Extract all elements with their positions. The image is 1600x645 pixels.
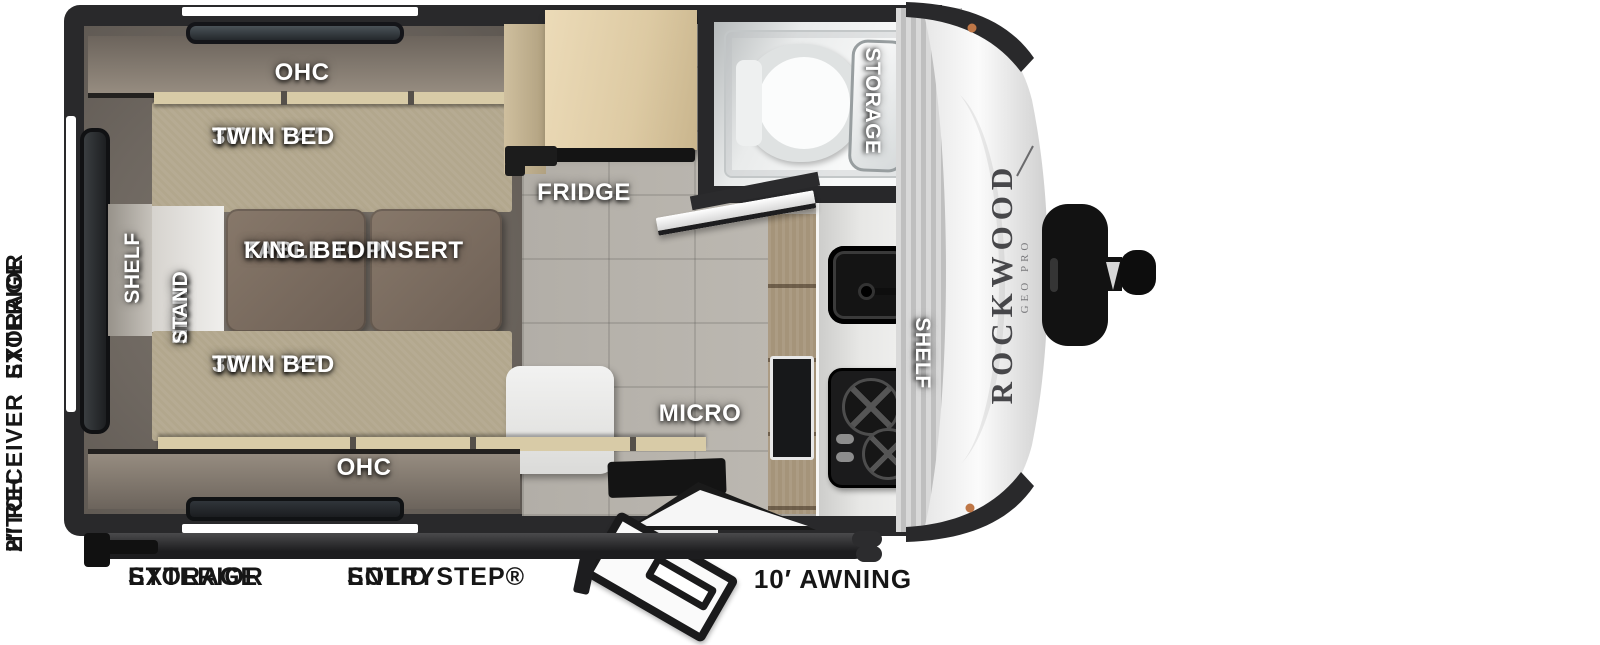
twin-bed-top-name: TWIN BED (212, 122, 335, 151)
micro-label: MICRO (630, 399, 770, 428)
roof-vent-top (186, 22, 404, 44)
toilet-tank (736, 60, 762, 146)
jack-knob (1120, 250, 1156, 295)
roof-vent-bottom (186, 497, 404, 521)
twin-bed-bottom-name: TWIN BED (212, 350, 335, 379)
strip-notch (281, 91, 287, 105)
ohc-label-bottom: OHC (304, 453, 424, 482)
side-table (506, 366, 614, 474)
rear-window-glass (80, 128, 110, 434)
awning-end-cap (852, 531, 882, 547)
rear-exterior-storage-label: EXTERIOR STORAGE (1, 149, 53, 379)
shelf-label-kitchen: SHELF (911, 288, 935, 418)
night-stand-line2: STAND (168, 271, 194, 344)
strip-notch (630, 437, 636, 451)
table-top-line2: KING BED INSERT (244, 236, 464, 265)
toilet-seat (758, 57, 850, 149)
propane-cover-seam (1050, 258, 1058, 292)
strip-notch (408, 91, 414, 105)
marker-light (966, 504, 975, 513)
front-cap (900, 0, 1170, 545)
fridge-handle (505, 162, 525, 176)
stove-knob (836, 434, 854, 444)
bathroom-storage-label: STORAGE (861, 26, 885, 176)
awning-roll (96, 533, 868, 559)
night-stand-label: NIGHT STAND (168, 194, 220, 344)
stabilizer-jack-arm (84, 540, 158, 554)
rv-floorplan: ROCKWOOD GEO PRO OHC 30″ × 74″ TWIN BED … (0, 0, 1600, 645)
exterior-storage-line2: STORAGE (128, 562, 258, 592)
cabinet-edge-strip-top (154, 92, 544, 104)
table-top-panel-left (226, 209, 366, 332)
ohc-label-top: OHC (242, 58, 362, 87)
faucet-base (858, 283, 875, 300)
microwave (770, 356, 814, 460)
brand-rockwood-label: ROCKWOOD (984, 133, 1018, 433)
awning-end-cap (856, 546, 882, 562)
fridge-cabinet (545, 10, 697, 150)
receiver-hitch-line2: HITCH (1, 477, 29, 552)
stove-knob (836, 452, 854, 462)
table-top-panel-right (370, 209, 502, 332)
fridge-base-shadow (549, 148, 695, 162)
fridge-label: FRIDGE (504, 178, 664, 207)
marker-light (968, 24, 977, 33)
awning-label: 10′ AWNING (713, 564, 953, 595)
rear-window (66, 116, 76, 412)
shelf-label-bedroom: SHELF (120, 193, 144, 343)
curbside-window (182, 524, 418, 533)
roadside-window (182, 7, 418, 16)
brand-geo-pro-label: GEO PRO (1019, 221, 1033, 331)
rear-exterior-storage-line2: STORAGE (1, 259, 29, 379)
twin-bed-bottom (152, 331, 512, 441)
solid-step-entry-line2: ENTRY (347, 562, 436, 592)
